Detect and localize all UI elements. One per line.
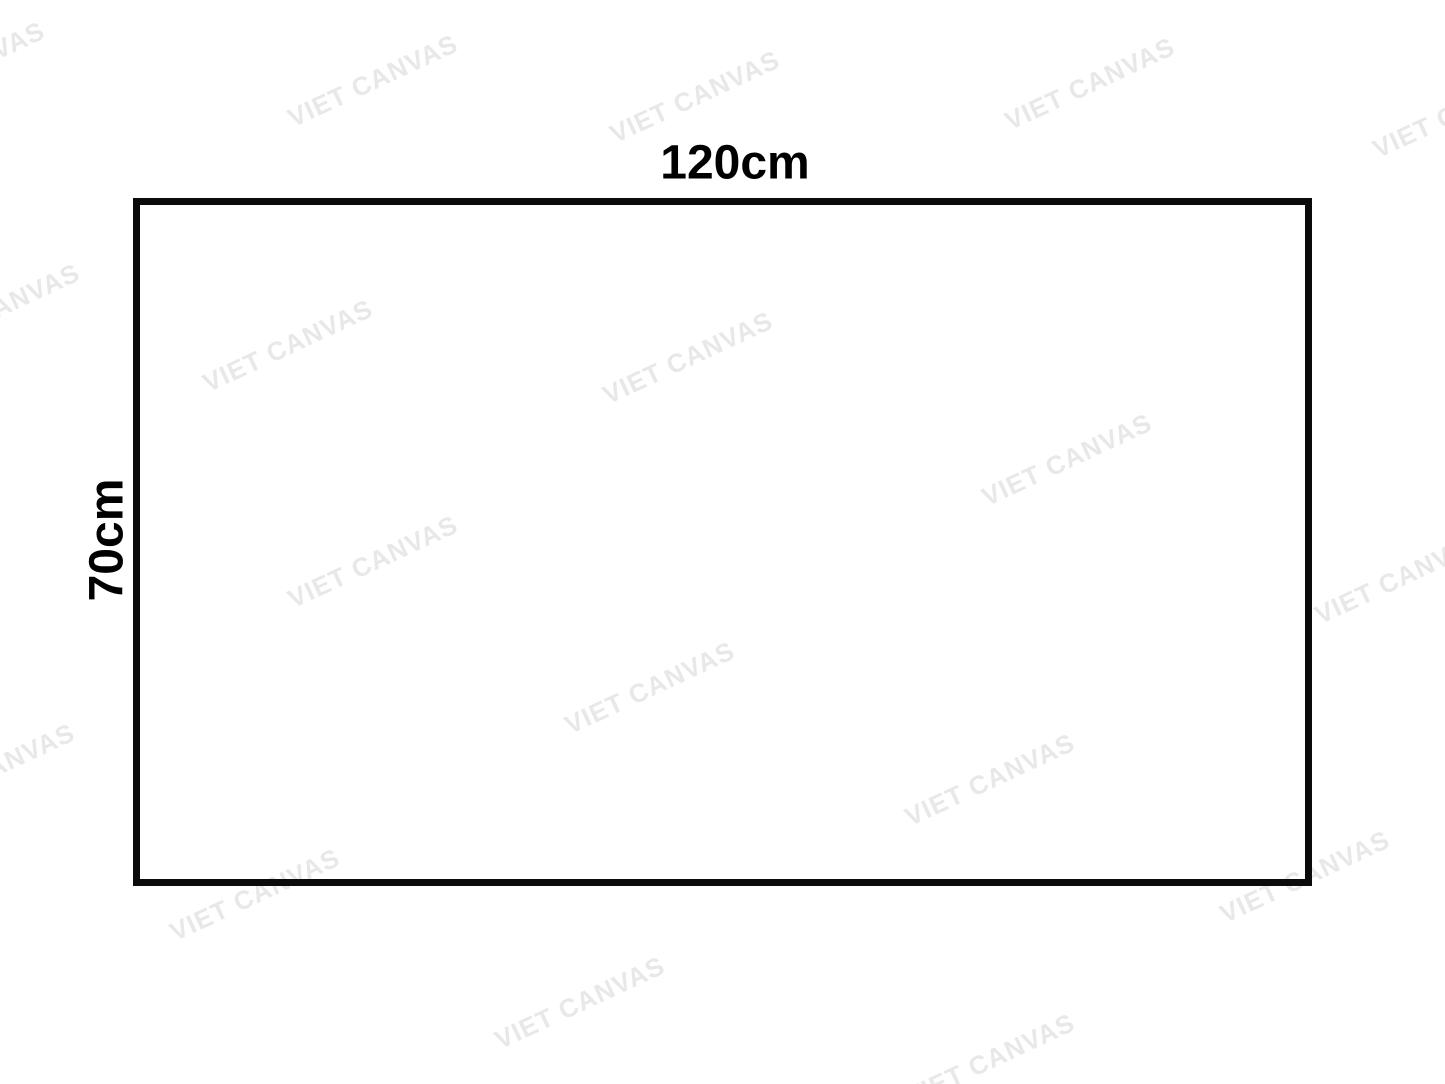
canvas-size-diagram: VIET CANVASVIET CANVASVIET CANVASVIET CA… (0, 0, 1445, 1084)
watermark-text: VIET CANVAS (900, 1007, 1080, 1084)
watermark-text: VIET CANVAS (0, 257, 85, 363)
canvas-rectangle (133, 198, 1312, 886)
watermark-text: VIET CANVAS (1310, 525, 1445, 631)
watermark-text: VIET CANVAS (490, 950, 670, 1056)
watermark-text: VIET CANVAS (1368, 59, 1445, 165)
watermark-text: VIET CANVAS (605, 44, 785, 150)
height-label: 70cm (80, 479, 135, 602)
watermark-text: VIET CANVAS (283, 28, 463, 134)
watermark-text: VIET CANVAS (1000, 31, 1180, 137)
width-label: 120cm (660, 136, 809, 191)
watermark-text: VIET CANVAS (0, 15, 50, 121)
watermark-text: VIET CANVAS (0, 717, 80, 823)
